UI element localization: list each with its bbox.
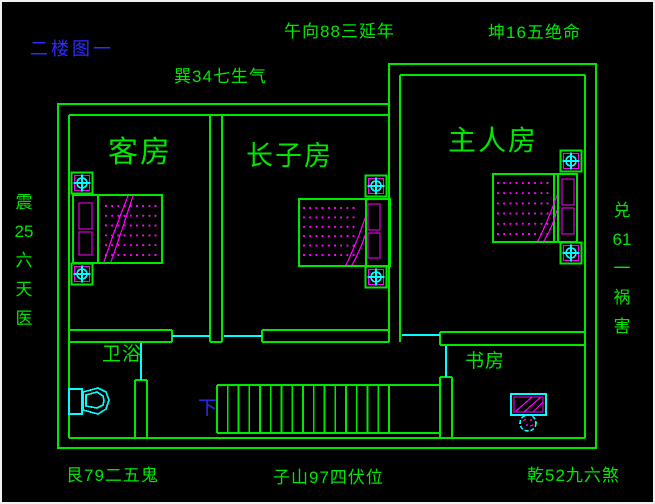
annotation-right: 兑 61 一 祸 害 [608, 196, 636, 341]
floor-plan-drawing [2, 2, 655, 504]
bathroom-wall [135, 380, 147, 438]
annotation-left-line: 医 [10, 304, 38, 333]
stairs-down-label: 下 [198, 399, 218, 420]
stool-icon [520, 415, 536, 431]
annotation-top-inner: 巽34七生气 [174, 68, 267, 87]
annotation-right-line: 祸 [608, 283, 636, 312]
room-label-eldest-son: 长子房 [246, 142, 333, 172]
floor-title: 二楼图一 [30, 40, 114, 60]
ceiling-light-icon [561, 243, 582, 264]
annotation-bottom-right: 乾52九六煞 [527, 467, 620, 486]
annotation-bottom-left: 艮79二五鬼 [66, 467, 159, 486]
ceiling-light-icon [561, 151, 582, 172]
bed-master-icon [493, 174, 577, 242]
annotation-right-line: 害 [608, 312, 636, 341]
bed-eldest-icon [299, 199, 390, 266]
corridor-wall [69, 330, 585, 345]
ceiling-light-icon [366, 176, 387, 197]
annotation-left-line: 25 [10, 217, 38, 246]
staircase [217, 385, 440, 433]
toilet-icon [69, 388, 109, 414]
study-wall [440, 377, 452, 438]
room-label-guest: 客房 [108, 136, 172, 169]
annotation-right-line: 兑 [608, 196, 636, 225]
ceiling-light-icon [72, 264, 93, 285]
annotation-top-right: 坤16五绝命 [488, 24, 581, 43]
annotation-left-line: 六 [10, 246, 38, 275]
floor-plan-screen: 二楼图一 午向88三延年 坤16五绝命 巽34七生气 震 25 六 天 医 兑 … [0, 0, 655, 504]
annotation-top-center: 午向88三延年 [284, 23, 395, 42]
outer-wall [58, 64, 596, 448]
desk-icon [511, 394, 546, 415]
ceiling-light-icon [366, 267, 387, 288]
annotation-right-line: 一 [608, 254, 636, 283]
wall-guest-eldest [210, 115, 222, 342]
room-label-bathroom: 卫浴 [102, 345, 142, 366]
room-label-master: 主人房 [448, 126, 538, 157]
annotation-left-line: 天 [10, 275, 38, 304]
annotation-bottom-center: 子山97四伏位 [273, 469, 384, 488]
bed-guest-icon [73, 195, 162, 263]
annotation-right-line: 61 [608, 225, 636, 254]
annotation-left: 震 25 六 天 医 [10, 188, 38, 333]
ceiling-light-icon [72, 173, 93, 194]
annotation-left-line: 震 [10, 188, 38, 217]
room-label-study: 书房 [465, 352, 505, 373]
stair-risers [228, 385, 389, 433]
